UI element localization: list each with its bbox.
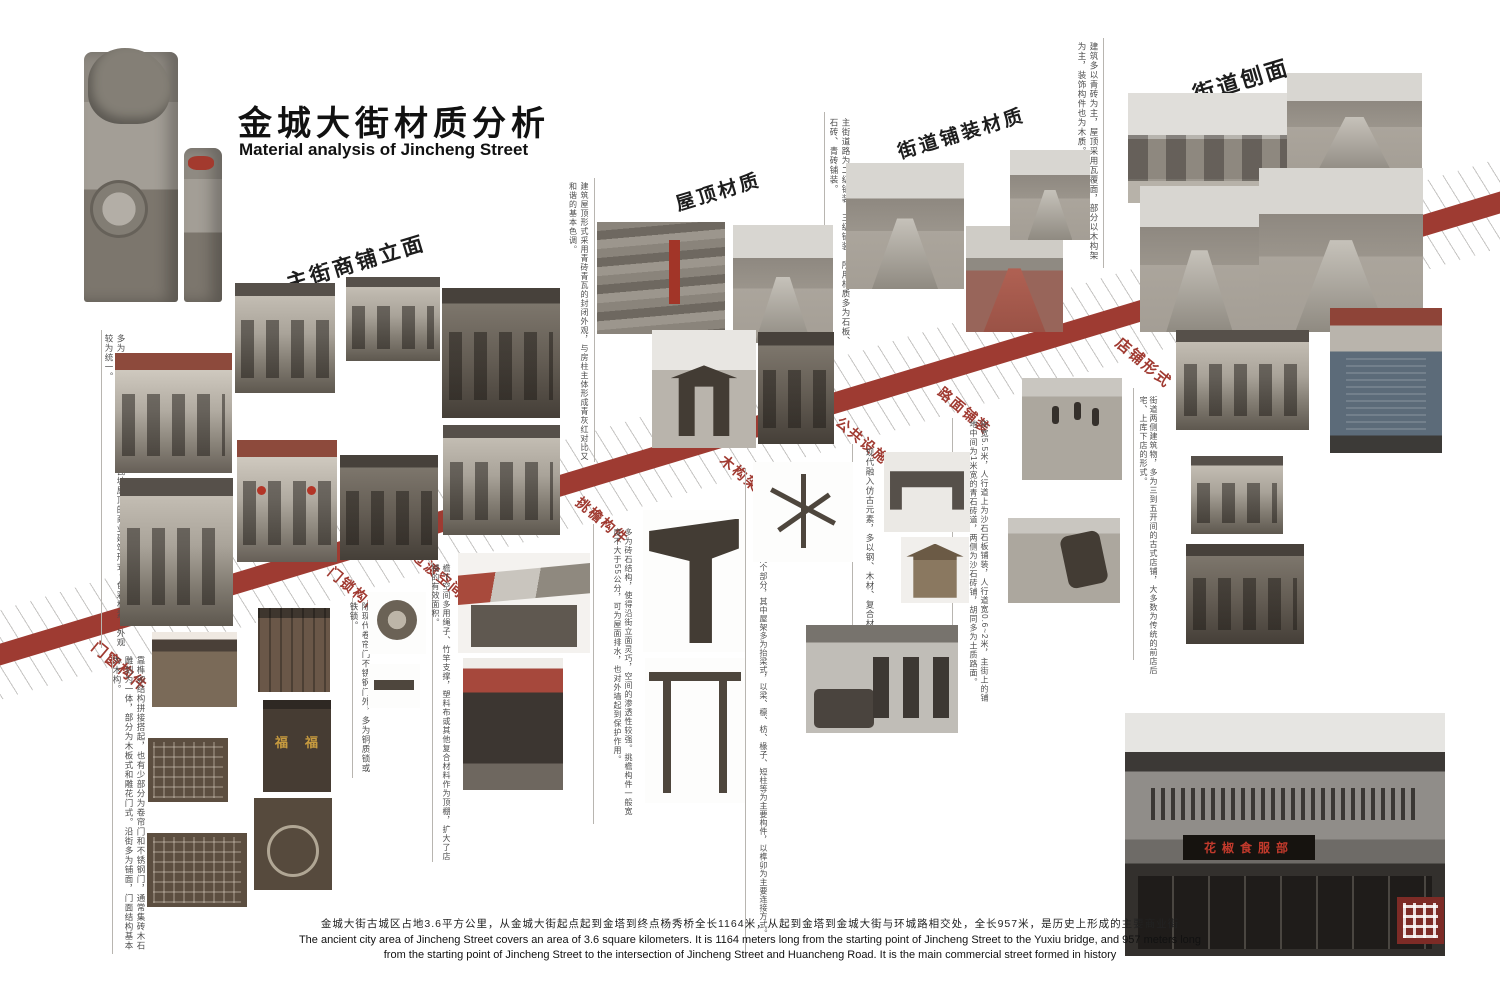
gate-post	[663, 681, 671, 793]
photo-red-paved-street	[966, 226, 1063, 332]
photo-lattice-window-2	[147, 833, 247, 907]
photo-wooden-double-door	[258, 608, 330, 692]
photo-pavement-pedestrians	[1022, 378, 1122, 480]
photo-timber-truss	[753, 462, 853, 562]
gate-lintel	[649, 672, 741, 681]
pedestrian	[1052, 406, 1059, 424]
note-roof-material: 建筑屋顶形式采用青砖青瓦的封闭外观，与房柱主体形成青灰红对比又和谐的基本色调。	[567, 182, 590, 464]
red-ornament	[188, 156, 214, 170]
tricycle	[814, 689, 875, 728]
divider-line	[745, 468, 746, 956]
divider-line	[593, 524, 594, 824]
footer-text-en-1: The ancient city area of Jincheng Street…	[100, 934, 1400, 946]
photo-balcony-facade	[1186, 544, 1304, 644]
red-banner	[669, 240, 680, 304]
photo-timber-gate-frame	[645, 658, 745, 803]
pedestrian	[1092, 408, 1099, 426]
footer-text-en-2: from the starting point of Jincheng Stre…	[100, 949, 1400, 961]
note-shop-form: 街道两侧建筑物，多为三到五开间的古式店铺，大多数为传统的前店后宅、上库下店的形式…	[1138, 396, 1158, 682]
photo-paved-street-1	[846, 163, 964, 289]
red-seal-logo	[1397, 897, 1444, 944]
photo-paved-street-2	[1010, 150, 1090, 240]
photo-eave-corbel	[643, 510, 745, 652]
photo-facade-4	[442, 288, 560, 418]
lock-hasp	[374, 680, 414, 690]
photo-roofscape	[597, 222, 725, 334]
corbel-silhouette	[649, 519, 739, 644]
gate-silhouette	[671, 365, 738, 436]
photo-small-shop	[1191, 456, 1283, 534]
red-lantern	[307, 486, 316, 495]
scooter	[1059, 530, 1109, 590]
balcony-railing	[1151, 788, 1420, 820]
photo-facade-3	[346, 277, 440, 361]
footer-text-zh: 金城大街古城区占地3.6平方公里，从金城大街起点起到金塔到终点杨秀桥全长1164…	[100, 916, 1400, 931]
stone-medallion	[90, 180, 148, 238]
stone-pillar-photo	[184, 148, 222, 302]
stone-lion-pillar-photo	[84, 52, 178, 302]
photo-facade-8	[443, 425, 560, 535]
photo-roof-facade	[758, 332, 834, 444]
photo-door-knocker	[368, 592, 426, 654]
photo-shopfront-shutter	[1330, 308, 1442, 453]
photo-facade-2	[235, 283, 335, 393]
note-road-pavement: 街宽5.5米，人行道上为沙石石板铺装，人行道宽0.6~2米，主街上的铺地中间为1…	[968, 420, 990, 704]
shaded-stall	[471, 605, 577, 647]
photo-facade-5	[120, 478, 233, 626]
pedestrian	[1074, 402, 1081, 420]
photo-shop-under-awning	[463, 658, 563, 790]
footer-paragraph: 金城大街古城区占地3.6平方公里，从金城大街起点起到金塔到终点杨秀桥全长1164…	[100, 916, 1400, 961]
circle-ornament	[267, 825, 319, 877]
note-transition-space: 檐下空间多用绳子、竹竿支撑，塑料布或其他复合材料作为顶棚，扩大了店铺的有效面积。	[430, 564, 452, 862]
photo-facade-1	[115, 353, 232, 473]
gate-post	[719, 681, 727, 793]
section-label-roof-material: 屋顶材质	[672, 165, 764, 216]
stone-lion-head	[88, 48, 170, 124]
poster-canvas: 金城大街材质分析 Material analysis of Jincheng S…	[0, 0, 1500, 1000]
divider-line	[1133, 388, 1134, 660]
note-door-window: 靠榫卯结构拼接搭起，也有少部分为卷帘门和不锈钢门，通常集砖木石雕刻为一体，部分为…	[111, 656, 147, 956]
photo-memorial-gate	[652, 330, 756, 448]
photo-roof-street	[733, 225, 833, 343]
photo-brick-gable	[1176, 330, 1309, 430]
page-title-zh: 金城大街材质分析	[238, 96, 550, 145]
photo-lattice-window-1	[148, 738, 228, 802]
divider-line	[1103, 38, 1104, 268]
page-title-en: Material analysis of Jincheng Street	[239, 140, 528, 160]
divider-line	[101, 330, 102, 648]
photo-facade-6	[237, 440, 337, 562]
note-eave-components: 多为砖石结构，使得沿街立面灵巧，空间的渗透性较强。挑檐构件一般宽度不大于55公分…	[612, 528, 634, 824]
photo-pavement-scooter	[1008, 518, 1120, 603]
section-label-street-paving: 街道铺装材质	[894, 100, 1028, 164]
photo-awning-structure	[458, 553, 590, 653]
red-lantern	[257, 486, 266, 495]
photo-door-with-canopy	[152, 632, 237, 707]
photo-dark-door-fu: 福 福	[263, 700, 331, 792]
divider-line	[594, 178, 595, 462]
tarp-canopy	[458, 563, 590, 605]
photo-public-toilet	[806, 625, 958, 733]
fu-plaque: 福	[275, 732, 288, 751]
photo-street-corner	[1287, 73, 1422, 173]
photo-hasp-lock	[368, 664, 420, 708]
fu-plaque: 福	[305, 732, 318, 751]
photo-facade-7	[340, 455, 438, 560]
photo-wooden-kiosk	[901, 537, 969, 603]
knocker-ring	[377, 600, 417, 640]
photo-circle-pattern-door	[254, 798, 332, 890]
photo-stone-bench	[884, 452, 970, 532]
photo-street-view-1	[1140, 186, 1259, 332]
shop-signboard: 花椒食服部	[1183, 835, 1315, 860]
